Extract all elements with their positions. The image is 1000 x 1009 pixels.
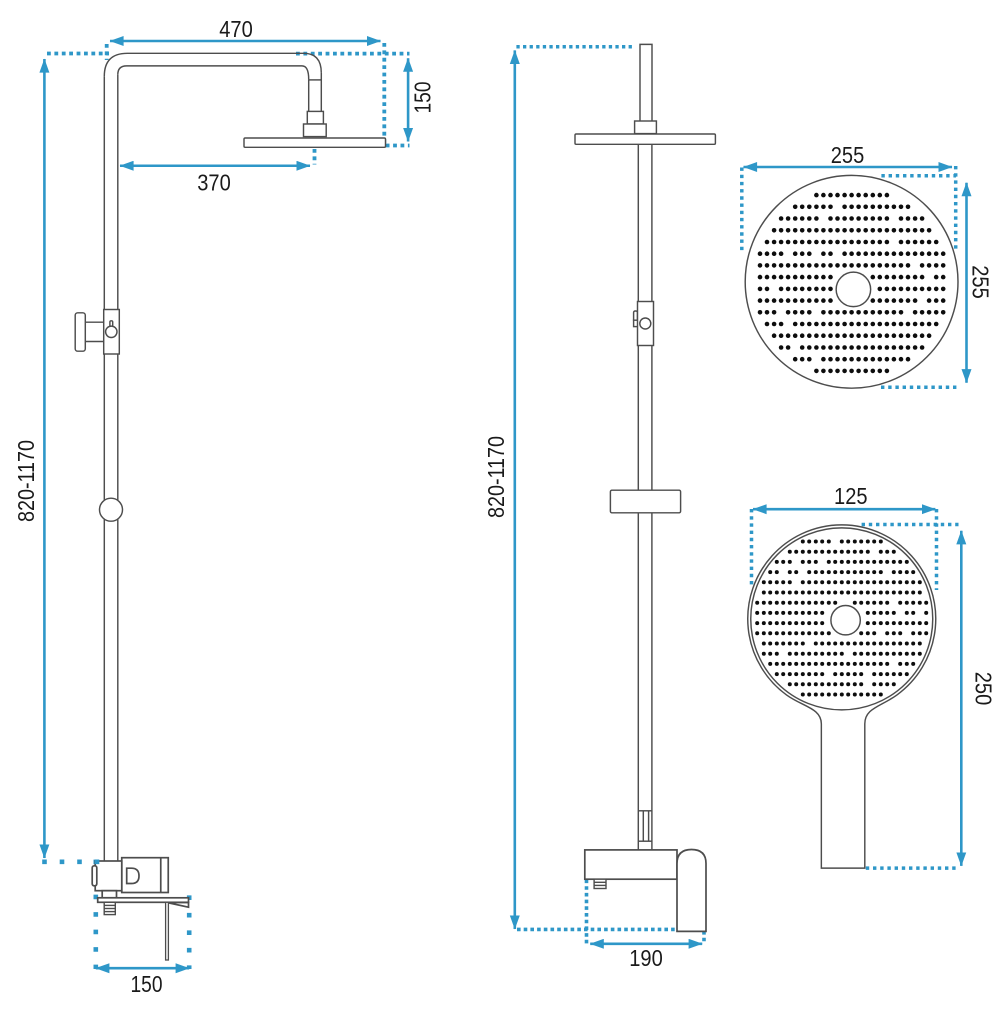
- svg-text:370: 370: [197, 170, 231, 196]
- svg-text:820-1170: 820-1170: [13, 440, 39, 522]
- svg-text:470: 470: [219, 16, 253, 42]
- svg-text:150: 150: [410, 82, 436, 114]
- svg-text:255: 255: [831, 142, 865, 168]
- svg-text:250: 250: [971, 672, 997, 706]
- svg-text:125: 125: [834, 483, 868, 509]
- svg-text:190: 190: [629, 945, 663, 971]
- svg-text:820-1170: 820-1170: [483, 436, 509, 518]
- svg-text:150: 150: [131, 971, 163, 997]
- svg-text:255: 255: [968, 265, 994, 299]
